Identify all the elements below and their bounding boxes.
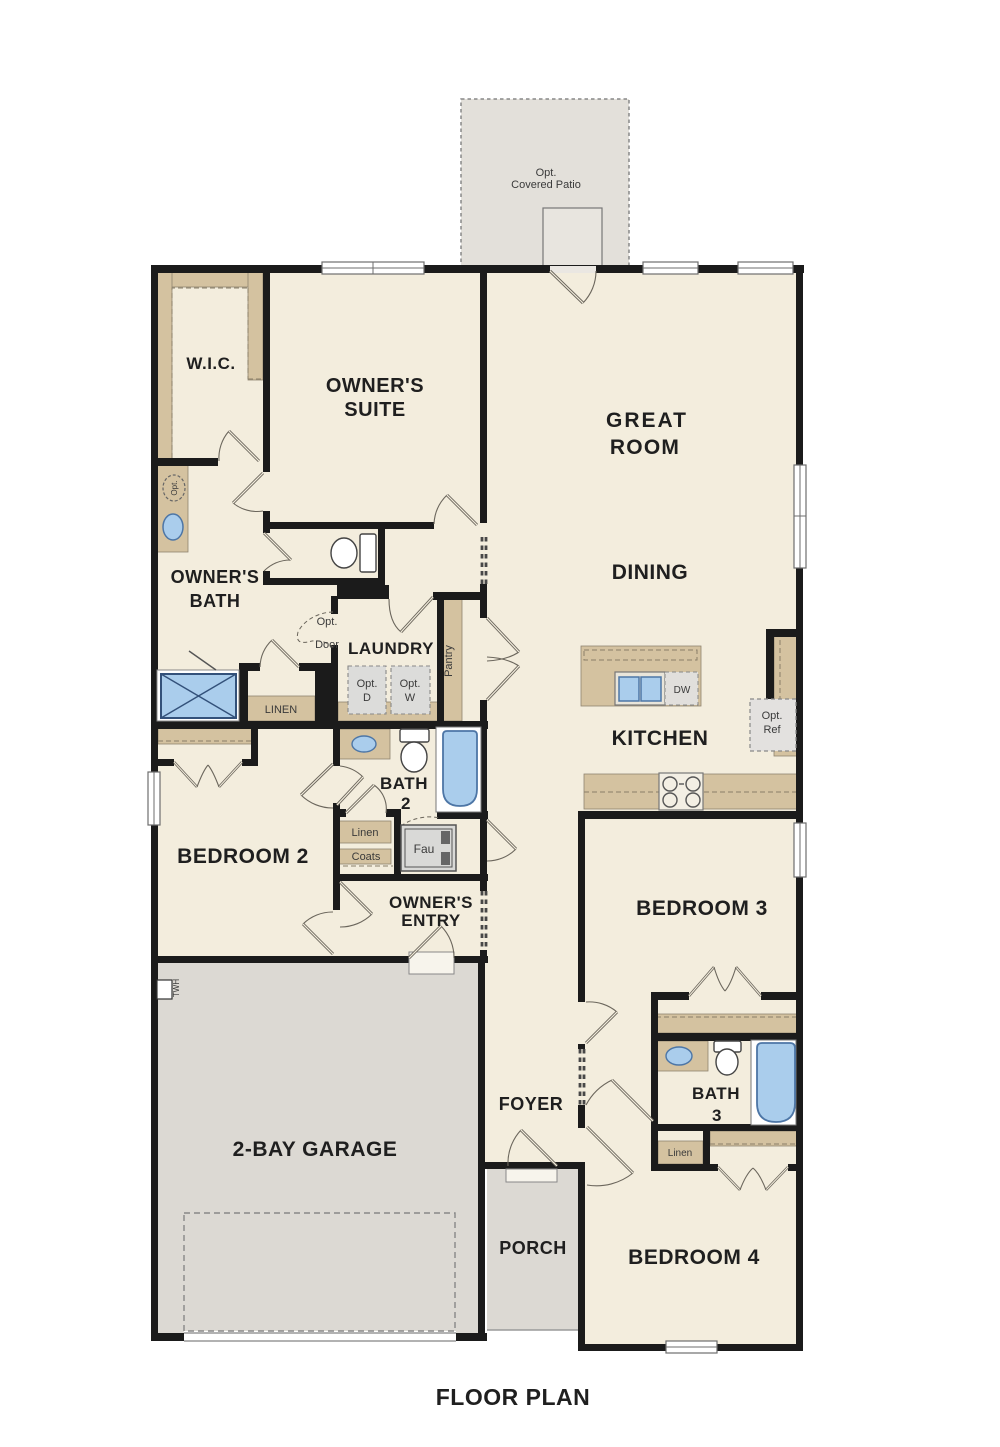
svg-text:D: D bbox=[363, 692, 371, 704]
svg-text:W.I.C.: W.I.C. bbox=[186, 354, 235, 373]
svg-text:SUITE: SUITE bbox=[344, 399, 405, 421]
svg-text:Opt.: Opt. bbox=[170, 480, 179, 495]
svg-text:LAUNDRY: LAUNDRY bbox=[348, 639, 434, 658]
svg-text:Fau: Fau bbox=[414, 842, 435, 856]
svg-text:3: 3 bbox=[712, 1106, 722, 1125]
svg-text:Coats: Coats bbox=[352, 851, 381, 863]
svg-text:2: 2 bbox=[401, 794, 411, 813]
svg-text:Opt.: Opt. bbox=[400, 678, 421, 690]
svg-text:2-BAY GARAGE: 2-BAY GARAGE bbox=[233, 1138, 398, 1161]
svg-text:PORCH: PORCH bbox=[499, 1238, 567, 1258]
svg-text:BEDROOM 4: BEDROOM 4 bbox=[628, 1246, 760, 1269]
svg-text:W: W bbox=[405, 692, 416, 704]
svg-text:DINING: DINING bbox=[612, 561, 689, 584]
svg-text:OWNER'S: OWNER'S bbox=[171, 567, 260, 587]
svg-text:TWH: TWH bbox=[172, 979, 181, 997]
svg-text:Pantry: Pantry bbox=[443, 645, 455, 677]
svg-text:Door: Door bbox=[315, 639, 339, 651]
svg-text:ROOM: ROOM bbox=[610, 436, 680, 459]
svg-text:BEDROOM 2: BEDROOM 2 bbox=[177, 845, 309, 868]
svg-text:Covered Patio: Covered Patio bbox=[511, 179, 581, 191]
svg-text:OWNER'S: OWNER'S bbox=[326, 375, 424, 397]
svg-text:Opt.: Opt. bbox=[357, 678, 378, 690]
svg-text:ENTRY: ENTRY bbox=[401, 911, 461, 930]
svg-text:Linen: Linen bbox=[668, 1148, 692, 1159]
svg-text:Ref: Ref bbox=[763, 724, 781, 736]
svg-text:GREAT: GREAT bbox=[606, 409, 688, 432]
svg-text:FOYER: FOYER bbox=[499, 1094, 564, 1114]
svg-text:OWNER'S: OWNER'S bbox=[389, 893, 473, 912]
svg-text:KITCHEN: KITCHEN bbox=[612, 727, 709, 750]
svg-text:BATH: BATH bbox=[692, 1084, 740, 1103]
svg-text:BATH: BATH bbox=[190, 591, 241, 611]
svg-text:FLOOR PLAN: FLOOR PLAN bbox=[436, 1384, 591, 1410]
svg-text:Opt.: Opt. bbox=[762, 710, 783, 722]
svg-text:Opt.: Opt. bbox=[317, 616, 338, 628]
svg-text:Linen: Linen bbox=[352, 827, 379, 839]
svg-text:BATH: BATH bbox=[380, 774, 428, 793]
svg-text:LINEN: LINEN bbox=[265, 704, 297, 716]
svg-text:BEDROOM 3: BEDROOM 3 bbox=[636, 897, 768, 920]
svg-text:Opt.: Opt. bbox=[536, 167, 557, 179]
svg-text:DW: DW bbox=[674, 685, 691, 696]
